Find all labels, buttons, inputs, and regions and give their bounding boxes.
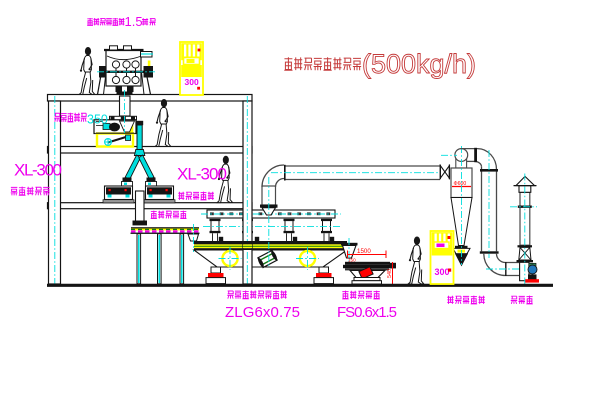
svg-text:XL-300: XL-300 bbox=[14, 161, 62, 180]
svg-text:1500: 1500 bbox=[357, 248, 371, 255]
svg-text:300: 300 bbox=[185, 77, 199, 87]
svg-text:350: 350 bbox=[87, 113, 108, 127]
svg-text:Φ600: Φ600 bbox=[454, 181, 467, 187]
svg-text:XL-300: XL-300 bbox=[177, 165, 227, 184]
svg-text:540: 540 bbox=[387, 269, 393, 278]
svg-text:300: 300 bbox=[435, 267, 450, 277]
svg-text:FS0.6x1.5: FS0.6x1.5 bbox=[337, 304, 397, 321]
svg-text:(500kg/h): (500kg/h) bbox=[362, 49, 476, 79]
svg-text:1.5: 1.5 bbox=[125, 14, 143, 29]
svg-text:ZLG6x0.75: ZLG6x0.75 bbox=[225, 304, 300, 321]
svg-text:150: 150 bbox=[348, 258, 356, 263]
